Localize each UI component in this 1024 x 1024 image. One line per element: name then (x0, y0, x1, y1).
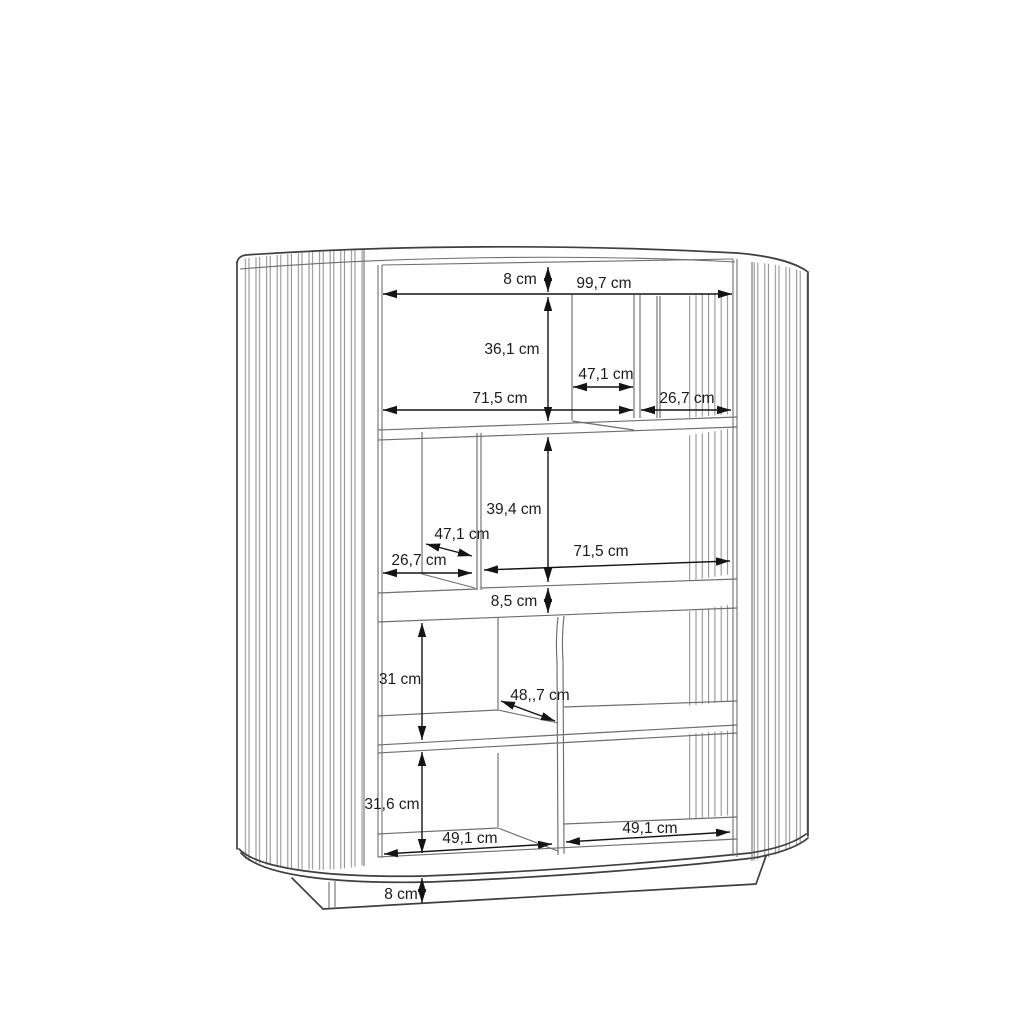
dim-upper-left-compartment: 71,5 cm (383, 390, 633, 410)
dim-upper-partition-depth: 47,1 cm (573, 366, 634, 387)
shelf1-top (378, 417, 737, 430)
band-top-right (481, 579, 737, 588)
dim-label: 71,5 cm (573, 543, 628, 560)
dim-middle-left-compartment: 26,7 cm (383, 552, 472, 573)
dim-bottom-section-height: 31,6 cm (364, 752, 422, 853)
right-fluted-panel (752, 262, 808, 861)
shelf2-back-left (378, 710, 498, 716)
dim-bottom-left-compartment: 49,1 cm (384, 830, 552, 854)
shelf2-wedge (498, 710, 558, 723)
shelf1-bottom (378, 427, 737, 440)
dim-divider-band-height: 8,5 cm (491, 588, 548, 613)
cabinet-technical-drawing: 8 cm 99,7 cm 36,1 cm 47,1 cm 71,5 cm 26,… (0, 0, 1024, 1024)
dim-label: 48,,7 cm (510, 687, 569, 704)
dim-label: 31 cm (379, 671, 421, 688)
tambour-slats-middle (686, 428, 733, 581)
interior-ceiling (382, 259, 733, 265)
dimensions: 8 cm 99,7 cm 36,1 cm 47,1 cm 71,5 cm 26,… (364, 267, 732, 903)
dim-label: 47,1 cm (434, 526, 489, 543)
floor-wedge (498, 828, 558, 851)
dim-label: 31,6 cm (364, 796, 419, 813)
band-wedge (422, 574, 475, 588)
lower-center-divider-a (556, 617, 558, 855)
dim-label: 8 cm (503, 271, 537, 288)
dim-middle-section-height: 39,4 cm (486, 437, 548, 582)
dim-label: 36,1 cm (484, 341, 539, 358)
tambour-slats-lower (686, 604, 733, 706)
dim-label: 8,5 cm (491, 593, 538, 610)
tambour-slats-bottom (686, 730, 733, 819)
dim-label: 99,7 cm (576, 275, 631, 292)
shelf2-back-right (564, 701, 737, 707)
dim-label: 71,5 cm (472, 390, 527, 407)
dim-label: 49,1 cm (622, 820, 677, 837)
left-fluted-panel (240, 250, 364, 870)
dim-lower-section-height: 31 cm (379, 623, 422, 740)
dim-interior-width: 99,7 cm (383, 275, 732, 294)
interior-structure (378, 292, 737, 857)
dim-lower-shelf-depth: 48,,7 cm (501, 687, 570, 721)
dim-label: 26,7 cm (391, 552, 446, 569)
dim-label: 8 cm (384, 886, 418, 903)
dim-label: 47,1 cm (578, 366, 633, 383)
band-top-left (378, 589, 477, 593)
dim-label: 39,4 cm (486, 501, 541, 518)
dim-label: 49,1 cm (442, 830, 497, 847)
dim-top-frame-height: 8 cm (503, 267, 548, 292)
dim-label: 26,7 cm (659, 390, 714, 407)
dim-line (501, 701, 555, 721)
